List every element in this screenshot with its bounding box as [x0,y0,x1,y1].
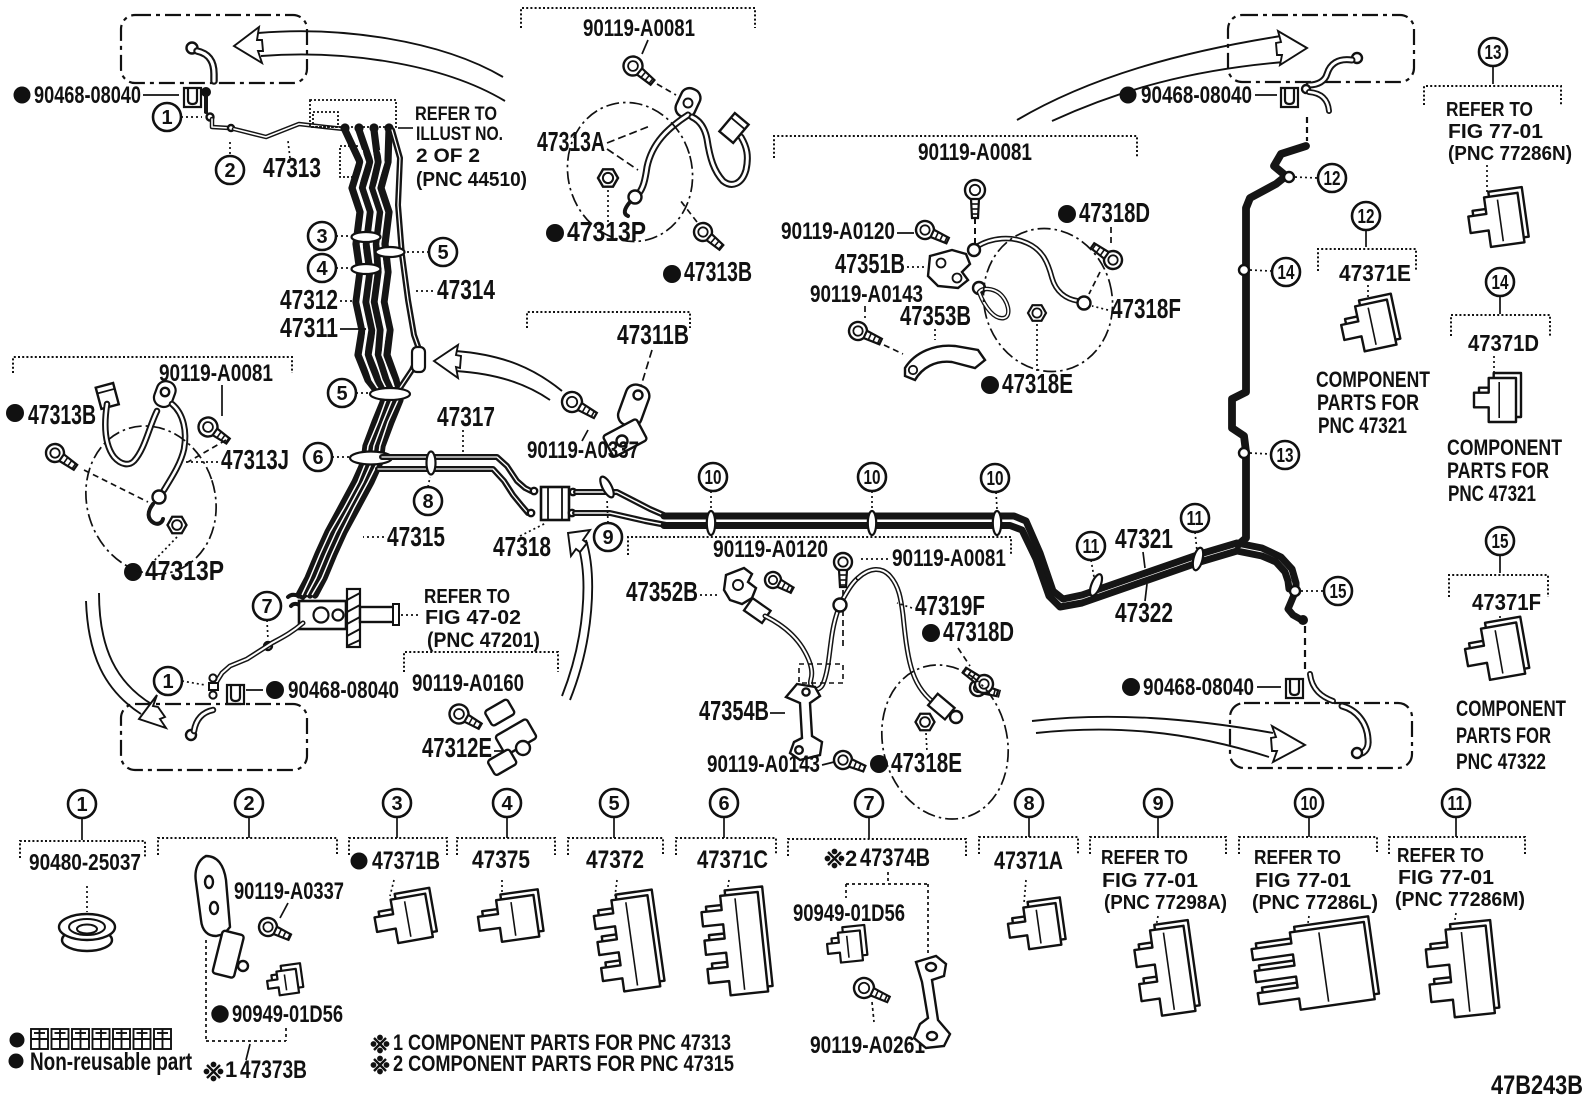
svg-text:PNC 47321: PNC 47321 [1318,413,1407,438]
svg-text:47375: 47375 [472,846,530,874]
svg-text:47311B: 47311B [617,319,689,350]
svg-text:13: 13 [1277,445,1294,467]
svg-text:4: 4 [316,258,328,280]
svg-text:(PNC 47201): (PNC 47201) [427,629,540,652]
svg-text:8: 8 [1023,793,1034,815]
svg-text:Non-reusable part: Non-reusable part [30,1048,193,1076]
svg-text:13: 13 [1485,42,1502,64]
svg-text:47371F: 47371F [1472,589,1541,615]
svg-text:(PNC 77298A): (PNC 77298A) [1104,892,1227,914]
svg-text:FIG 77-01: FIG 77-01 [1102,870,1198,892]
svg-text:47318E: 47318E [1002,368,1073,399]
svg-text:90119-A0160: 90119-A0160 [412,670,524,697]
svg-text:47371D: 47371D [1468,330,1539,356]
svg-text:11: 11 [1187,508,1204,530]
svg-text:2 OF 2: 2 OF 2 [416,146,480,167]
svg-text:10: 10 [987,468,1004,490]
svg-text:90119-A0081: 90119-A0081 [583,15,695,42]
svg-text:47313P: 47313P [567,216,646,247]
svg-text:PARTS FOR: PARTS FOR [1317,390,1419,415]
svg-text:(PNC 77286L): (PNC 77286L) [1252,892,1378,914]
svg-text:1: 1 [162,671,173,693]
svg-text:90119-A0081: 90119-A0081 [892,545,1006,572]
svg-text:47313J: 47313J [221,444,289,475]
svg-text:47312E: 47312E [422,732,492,763]
svg-text:47313: 47313 [263,152,321,183]
svg-text:47313A: 47313A [537,126,605,157]
svg-text:90480-25037: 90480-25037 [29,849,141,875]
svg-text:47322: 47322 [1115,597,1173,628]
svg-text:90119-A0337: 90119-A0337 [234,878,344,905]
svg-text:REFER TO: REFER TO [424,586,510,608]
svg-text:7: 7 [261,596,272,618]
svg-text:11: 11 [1448,793,1465,815]
svg-text:3: 3 [316,226,327,248]
svg-text:9: 9 [602,527,613,549]
svg-text:90119-A0143: 90119-A0143 [707,751,820,778]
svg-text:14: 14 [1278,262,1296,284]
svg-text:6: 6 [312,447,323,469]
svg-text:15: 15 [1492,531,1509,553]
svg-text:12: 12 [1358,206,1375,228]
svg-text:PARTS FOR: PARTS FOR [1447,458,1549,483]
svg-text:12: 12 [1324,168,1341,190]
svg-text:47373B: 47373B [240,1056,307,1084]
svg-text:47311: 47311 [280,312,338,343]
svg-text:REFER TO: REFER TO [415,104,497,125]
svg-text:47317: 47317 [437,401,495,432]
svg-text:47371E: 47371E [1339,260,1411,286]
svg-text:COMPONENT: COMPONENT [1316,367,1430,392]
svg-text:REFER TO: REFER TO [1101,847,1188,869]
svg-text:90119-A0081: 90119-A0081 [159,360,273,387]
svg-text:90468-08040: 90468-08040 [288,677,399,704]
svg-text:90119-A0081: 90119-A0081 [918,139,1032,166]
svg-text:2 COMPONENT PARTS FOR PNC 4731: 2 COMPONENT PARTS FOR PNC 47315 [393,1051,734,1076]
svg-text:FIG 47-02: FIG 47-02 [425,607,521,629]
svg-text:90468-08040: 90468-08040 [34,82,141,109]
svg-text:47321: 47321 [1115,523,1173,554]
svg-text:15: 15 [1330,581,1347,603]
svg-text:PNC 47322: PNC 47322 [1456,749,1546,774]
svg-text:47371B: 47371B [372,847,440,875]
svg-text:5: 5 [336,383,347,405]
svg-text:PNC 47321: PNC 47321 [1448,481,1536,506]
svg-text:47351B: 47351B [835,248,905,279]
svg-text:4: 4 [501,793,513,815]
svg-text:90119-A0120: 90119-A0120 [781,218,895,245]
svg-text:COMPONENT: COMPONENT [1447,435,1562,460]
svg-text:47B243B: 47B243B [1491,1070,1583,1099]
svg-text:47313P: 47313P [145,555,224,586]
svg-text:90468-08040: 90468-08040 [1141,82,1252,109]
svg-text:47374B: 47374B [860,844,930,872]
svg-text:2: 2 [224,160,235,182]
svg-text:47314: 47314 [437,274,495,305]
svg-text:2: 2 [243,793,254,815]
svg-text:47318D: 47318D [943,616,1014,647]
svg-text:9: 9 [1152,793,1163,815]
svg-text:ILLUST NO.: ILLUST NO. [416,124,503,145]
svg-text:90119-A0337: 90119-A0337 [527,437,639,464]
svg-text:8: 8 [422,491,433,513]
svg-text:2: 2 [845,846,857,871]
svg-text:PARTS FOR: PARTS FOR [1456,723,1551,748]
svg-text:(PNC 77286M): (PNC 77286M) [1395,889,1525,911]
svg-text:47312: 47312 [280,284,338,315]
svg-text:REFER TO: REFER TO [1446,99,1533,121]
svg-text:5: 5 [608,793,619,815]
svg-text:FIG 77-01: FIG 77-01 [1448,121,1543,143]
svg-text:REFER TO: REFER TO [1397,845,1484,867]
svg-text:5: 5 [437,242,448,264]
svg-text:1: 1 [161,107,172,129]
svg-text:90119-A0261: 90119-A0261 [810,1032,925,1059]
svg-text:47318E: 47318E [891,747,962,778]
svg-text:90468-08040: 90468-08040 [1143,674,1254,701]
svg-text:FIG 77-01: FIG 77-01 [1398,867,1494,889]
svg-text:1: 1 [76,794,87,816]
svg-text:47372: 47372 [586,846,644,874]
svg-text:10: 10 [864,467,881,489]
svg-text:47313B: 47313B [684,256,752,287]
svg-text:47318D: 47318D [1079,197,1150,228]
svg-text:47371C: 47371C [697,846,768,874]
svg-text:3: 3 [391,793,402,815]
svg-text:REFER TO: REFER TO [1254,847,1341,869]
svg-text:7: 7 [863,793,874,815]
svg-text:FIG 77-01: FIG 77-01 [1255,870,1351,892]
svg-text:47371A: 47371A [994,847,1063,875]
svg-text:COMPONENT: COMPONENT [1456,696,1566,721]
svg-text:90119-A0120: 90119-A0120 [713,536,828,563]
svg-text:(PNC 44510): (PNC 44510) [416,169,527,191]
svg-text:14: 14 [1492,272,1510,294]
svg-text:47352B: 47352B [626,576,698,607]
svg-text:10: 10 [1301,793,1318,815]
svg-text:47315: 47315 [387,521,445,552]
svg-text:(PNC 77286N): (PNC 77286N) [1448,143,1572,165]
svg-text:47313B: 47313B [28,399,96,430]
svg-text:47354B: 47354B [699,695,769,726]
svg-text:11: 11 [1083,536,1100,558]
svg-text:47353B: 47353B [900,300,971,331]
svg-text:1: 1 [225,1057,237,1082]
svg-text:6: 6 [718,793,729,815]
svg-text:10: 10 [705,467,722,489]
svg-text:90949-01D56: 90949-01D56 [232,1001,343,1028]
svg-text:47318F: 47318F [1111,293,1181,324]
svg-text:90949-01D56: 90949-01D56 [793,900,905,927]
